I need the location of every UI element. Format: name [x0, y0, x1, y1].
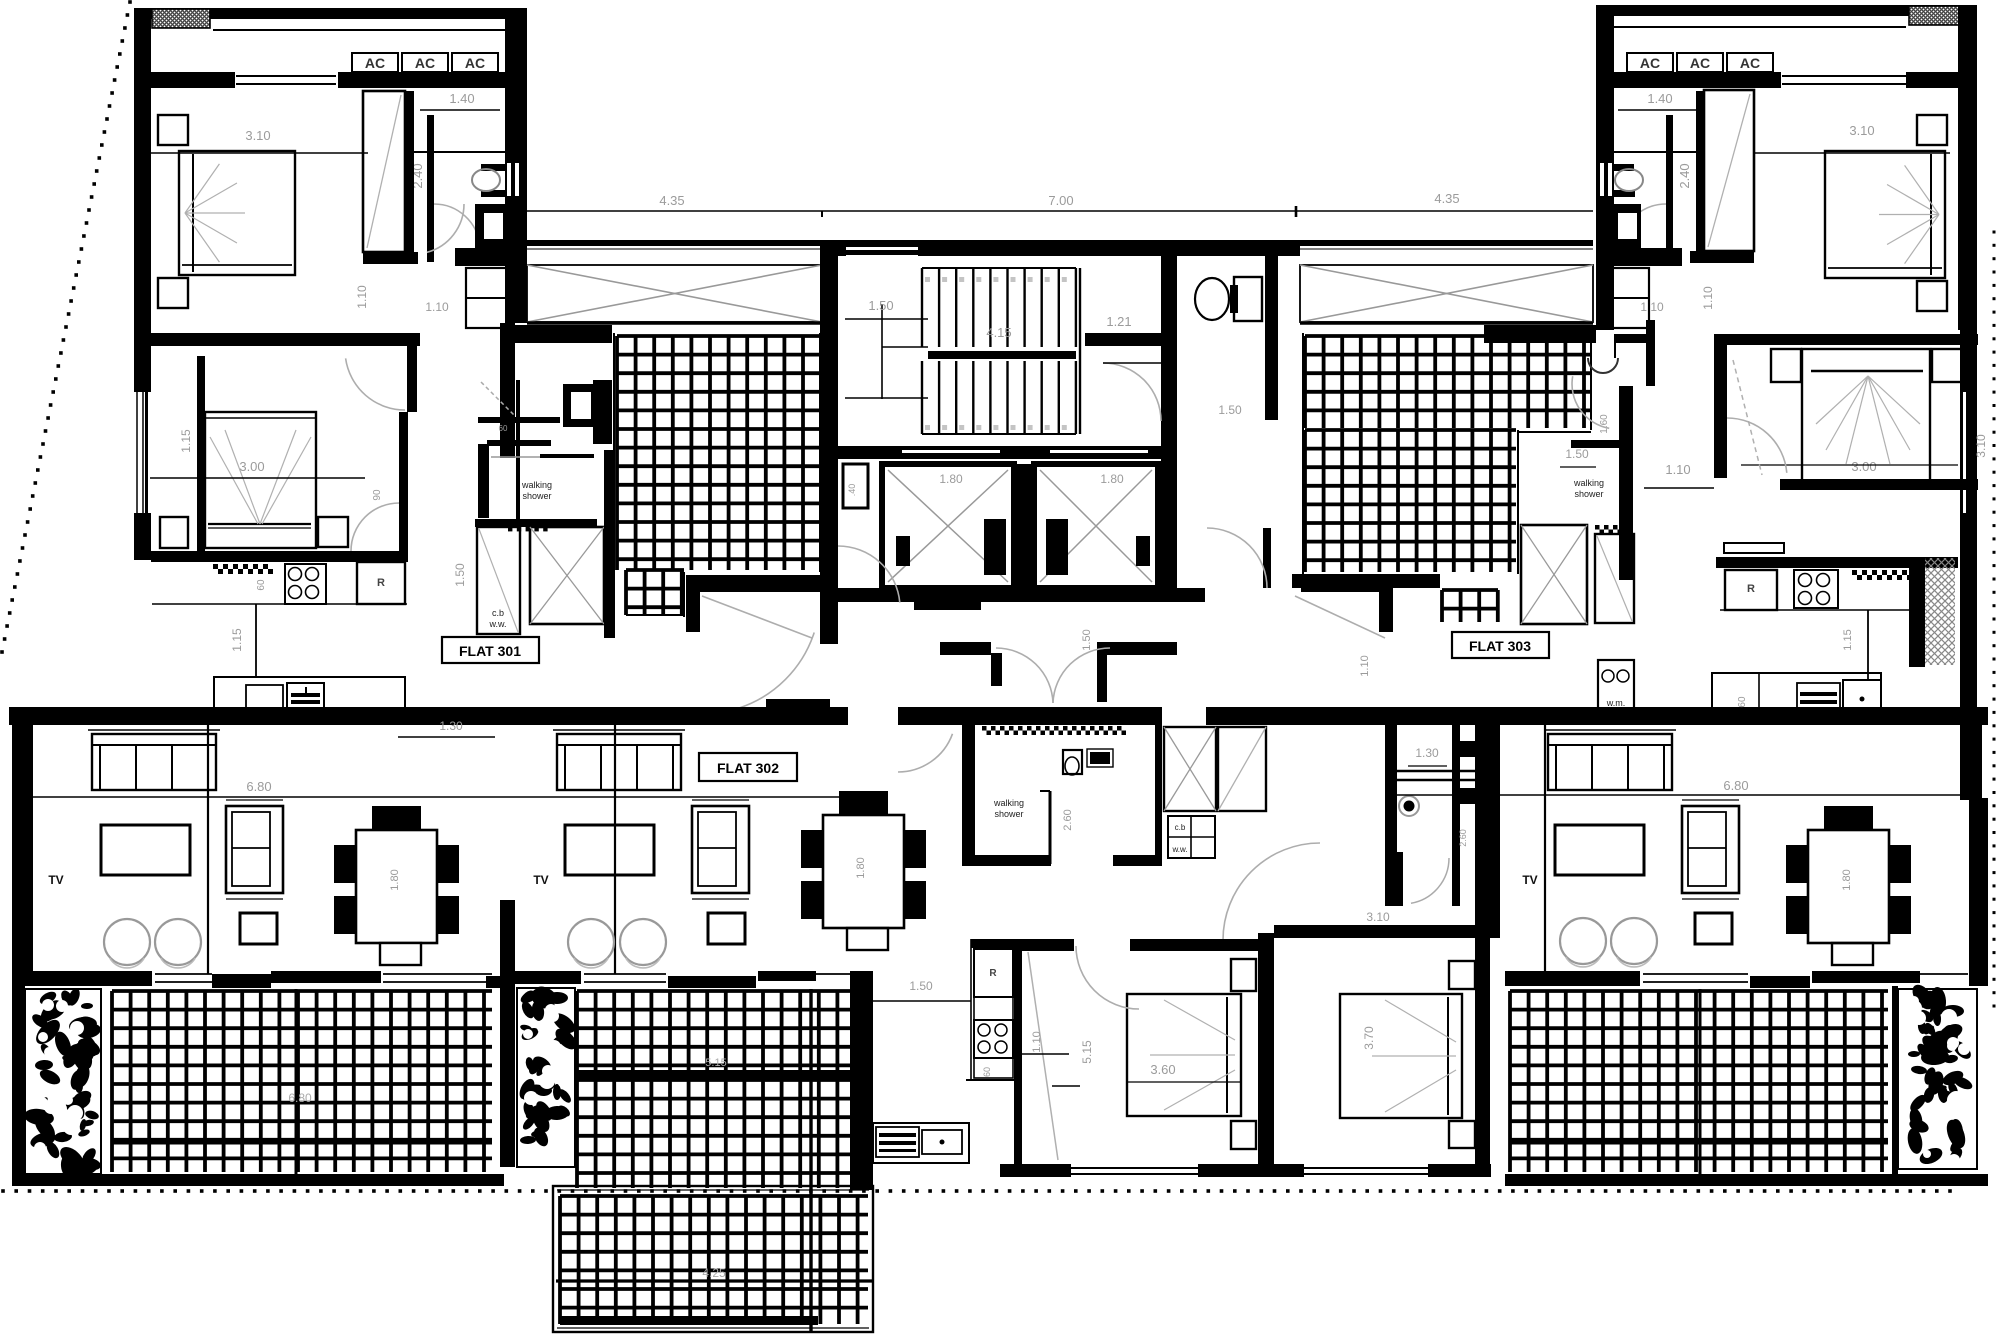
svg-text:2.60: 2.60 — [1062, 809, 1074, 830]
svg-text:w.w.: w.w. — [488, 619, 506, 629]
svg-text:AC: AC — [415, 55, 435, 71]
svg-text:TV: TV — [533, 873, 548, 887]
svg-text:1.21: 1.21 — [1106, 314, 1131, 329]
svg-text:3.10: 3.10 — [1849, 123, 1874, 138]
svg-text:60: 60 — [499, 424, 508, 433]
svg-text:60: 60 — [256, 579, 267, 591]
svg-text:AC: AC — [465, 55, 485, 71]
svg-text:1.10: 1.10 — [1031, 1031, 1043, 1052]
svg-text:3.10: 3.10 — [1366, 910, 1390, 924]
svg-text:4.35: 4.35 — [1434, 191, 1459, 206]
svg-text:1.50: 1.50 — [453, 563, 467, 587]
svg-text:shower: shower — [994, 809, 1023, 819]
svg-text:3.60: 3.60 — [1150, 1062, 1175, 1077]
svg-text:4.35: 4.35 — [659, 193, 684, 208]
svg-text:1.10: 1.10 — [1701, 286, 1715, 310]
svg-text:TV: TV — [48, 873, 63, 887]
svg-text:1.50: 1.50 — [1565, 447, 1589, 461]
svg-text:FLAT 302: FLAT 302 — [717, 760, 779, 776]
svg-text:1.15: 1.15 — [1842, 629, 1854, 650]
svg-text:R: R — [989, 968, 997, 979]
svg-text:walking: walking — [993, 798, 1024, 808]
svg-text:1.80: 1.80 — [1100, 472, 1124, 486]
svg-text:1.30: 1.30 — [439, 719, 463, 733]
svg-text:AC: AC — [1740, 55, 1760, 71]
svg-text:5.15: 5.15 — [705, 1057, 726, 1069]
svg-text:6.80: 6.80 — [246, 779, 271, 794]
svg-text:4.25: 4.25 — [702, 1266, 726, 1280]
svg-text:1.30: 1.30 — [1415, 746, 1439, 760]
svg-text:1.80: 1.80 — [389, 869, 401, 890]
svg-text:3.00: 3.00 — [1851, 459, 1876, 474]
svg-text:FLAT 301: FLAT 301 — [459, 643, 521, 659]
svg-text:shower: shower — [522, 491, 551, 501]
svg-text:1.50: 1.50 — [1218, 403, 1242, 417]
svg-text:1.80: 1.80 — [855, 857, 867, 878]
svg-text:AC: AC — [1640, 55, 1660, 71]
svg-text:6.80: 6.80 — [1723, 778, 1748, 793]
svg-text:1.80: 1.80 — [939, 472, 963, 486]
svg-text:R: R — [377, 577, 385, 589]
svg-text:3.00: 3.00 — [239, 459, 264, 474]
svg-text:90: 90 — [372, 489, 383, 501]
svg-text:w.w.: w.w. — [1171, 845, 1187, 854]
svg-text:shower: shower — [1574, 489, 1603, 499]
svg-text:AC: AC — [365, 55, 385, 71]
svg-text:walking: walking — [1573, 478, 1604, 488]
svg-text:4.15: 4.15 — [986, 325, 1011, 340]
svg-text:1.15: 1.15 — [179, 429, 193, 453]
svg-text:R: R — [1747, 583, 1755, 595]
svg-text:3.10: 3.10 — [245, 128, 270, 143]
svg-text:60: 60 — [982, 1067, 992, 1077]
svg-text:w.m.: w.m. — [1606, 698, 1626, 708]
svg-text:1.50: 1.50 — [1081, 629, 1093, 650]
svg-text:5.15: 5.15 — [1080, 1040, 1094, 1064]
svg-text:FLAT 303: FLAT 303 — [1469, 638, 1531, 654]
svg-text:1.10: 1.10 — [355, 285, 369, 309]
svg-text:1.50: 1.50 — [868, 298, 893, 313]
svg-text:1.60: 1.60 — [1599, 414, 1610, 434]
svg-text:walking: walking — [521, 480, 552, 490]
svg-text:2.40: 2.40 — [1677, 163, 1692, 188]
svg-text:1.10: 1.10 — [1359, 655, 1371, 676]
svg-text:AC: AC — [1690, 55, 1710, 71]
svg-text:1.10: 1.10 — [1665, 462, 1690, 477]
svg-text:c.b: c.b — [1175, 823, 1186, 832]
svg-text:1.10: 1.10 — [425, 300, 449, 314]
svg-text:3.70: 3.70 — [1362, 1026, 1376, 1050]
svg-text:c.b: c.b — [492, 608, 504, 618]
svg-text:60: 60 — [1737, 696, 1748, 708]
svg-text:3.10: 3.10 — [1974, 434, 1988, 458]
svg-text:1.15: 1.15 — [230, 628, 244, 652]
svg-text:1.40: 1.40 — [449, 91, 474, 106]
svg-text:1.10: 1.10 — [1640, 300, 1664, 314]
svg-text:1.50: 1.50 — [909, 979, 933, 993]
svg-text:1.40: 1.40 — [1647, 91, 1672, 106]
svg-text:7.00: 7.00 — [1048, 193, 1073, 208]
svg-text:.40: .40 — [847, 484, 857, 497]
svg-text:1.80: 1.80 — [1841, 869, 1853, 890]
svg-text:2.60: 2.60 — [1458, 829, 1468, 847]
svg-text:6.80: 6.80 — [288, 1091, 312, 1105]
svg-text:TV: TV — [1522, 873, 1537, 887]
